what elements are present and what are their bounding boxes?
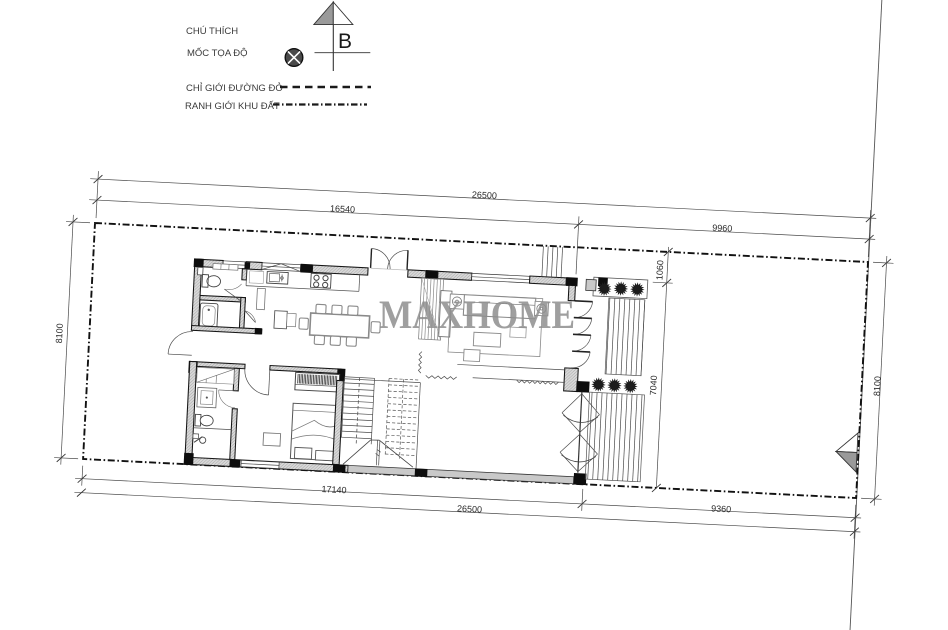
svg-text:8100: 8100 [872, 376, 883, 397]
svg-text:26500: 26500 [457, 503, 483, 514]
svg-text:B: B [338, 30, 352, 53]
svg-text:9960: 9960 [712, 223, 733, 234]
svg-text:17140: 17140 [321, 484, 347, 495]
svg-text:CHỈ GIỚI ĐƯỜNG ĐỎ: CHỈ GIỚI ĐƯỜNG ĐỎ [186, 82, 283, 94]
svg-text:RANH GIỚI KHU ĐẤT: RANH GIỚI KHU ĐẤT [185, 101, 280, 112]
svg-text:1060: 1060 [654, 260, 665, 281]
svg-text:CHÚ THÍCH: CHÚ THÍCH [186, 26, 238, 37]
svg-text:MỐC TỌA ĐỘ: MỐC TỌA ĐỘ [187, 47, 248, 59]
svg-text:MAXHOME: MAXHOME [379, 292, 575, 337]
svg-text:9360: 9360 [711, 503, 732, 514]
svg-text:16540: 16540 [330, 203, 356, 214]
svg-text:8100: 8100 [54, 323, 65, 344]
svg-text:26500: 26500 [472, 189, 498, 200]
svg-text:7040: 7040 [648, 375, 659, 396]
